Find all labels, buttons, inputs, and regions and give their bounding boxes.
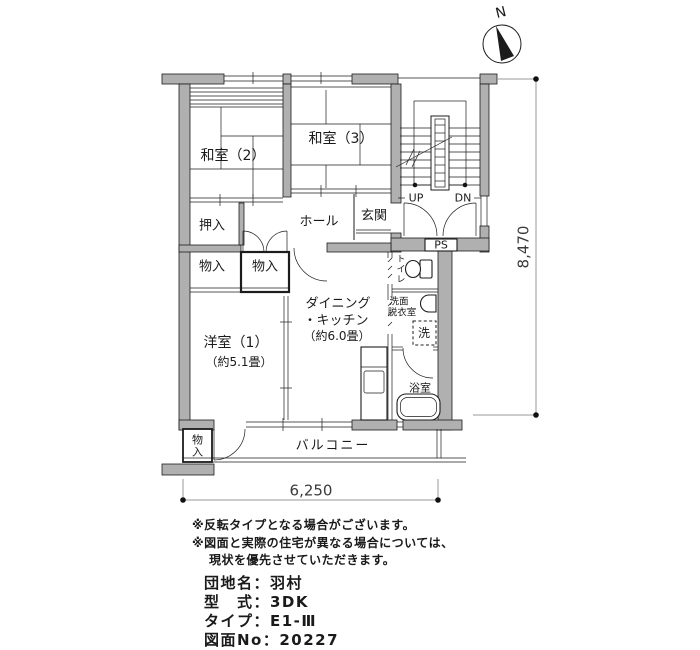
- room-label-washitsu2: 和室（2）: [201, 149, 266, 163]
- room-label-monoire-hall: 物入: [252, 261, 278, 274]
- info-type-code: タイプ：E1-Ⅲ: [204, 610, 317, 631]
- room-label-genkan: 玄関: [361, 210, 387, 223]
- room-label-toilet: トイレ: [395, 254, 404, 284]
- label-ps: PS: [434, 240, 448, 251]
- info-layout-type: 型 式：3DK: [204, 591, 309, 612]
- room-label-monoire-west: 物入: [199, 261, 225, 274]
- room-label-western1: 洋室（1）: [204, 336, 269, 350]
- room-label-dk-size: （約6.0畳）: [303, 330, 370, 342]
- floor-plan-page: N 和室（2） 和室（3） 押入 物入 物入 ホール 玄関 洋室（1） （約5.…: [0, 0, 700, 650]
- room-label-bath: 浴室: [409, 383, 431, 394]
- north-arrow-icon: [483, 25, 521, 63]
- room-label-senmen-line1: 洗面: [389, 297, 408, 307]
- room-label-dk-line1: ダイニング: [305, 298, 370, 311]
- note-line-2: ※図面と実際の住宅が異なる場合については、: [192, 534, 454, 551]
- room-label-oshiire: 押入: [199, 220, 225, 233]
- room-label-balcony-storage: 物入: [192, 434, 203, 458]
- room-label-dk-line2: ・キッチン: [303, 315, 368, 328]
- room-label-western1-size: （約5.1畳）: [205, 356, 272, 368]
- dimension-right-value: 8,470: [517, 226, 532, 269]
- room-label-washer: 洗: [418, 327, 430, 339]
- info-danchi-name: 団地名：羽村: [204, 572, 303, 593]
- room-label-washitsu3: 和室（3）: [309, 132, 374, 146]
- sink-icon: [421, 295, 437, 312]
- label-stairs-dn: DN: [455, 193, 472, 204]
- room-label-hall: ホール: [299, 216, 338, 229]
- stairs: [396, 101, 481, 198]
- toilet-icon: [406, 260, 433, 278]
- fixtures: [361, 260, 440, 420]
- room-label-balcony: バルコニー: [296, 440, 371, 453]
- kitchen-counter: [361, 347, 387, 420]
- note-line-3: 現状を優先させていただきます。: [209, 551, 395, 568]
- dimension-bottom-value: 6,250: [290, 484, 333, 499]
- label-stairs-up: UP: [409, 193, 424, 204]
- info-drawing-number: 図面No：20227: [204, 629, 339, 650]
- bathtub-icon: [397, 394, 440, 420]
- note-line-1: ※反転タイプとなる場合がございます。: [192, 516, 415, 533]
- room-label-senmen-line2: 脱衣室: [388, 308, 417, 318]
